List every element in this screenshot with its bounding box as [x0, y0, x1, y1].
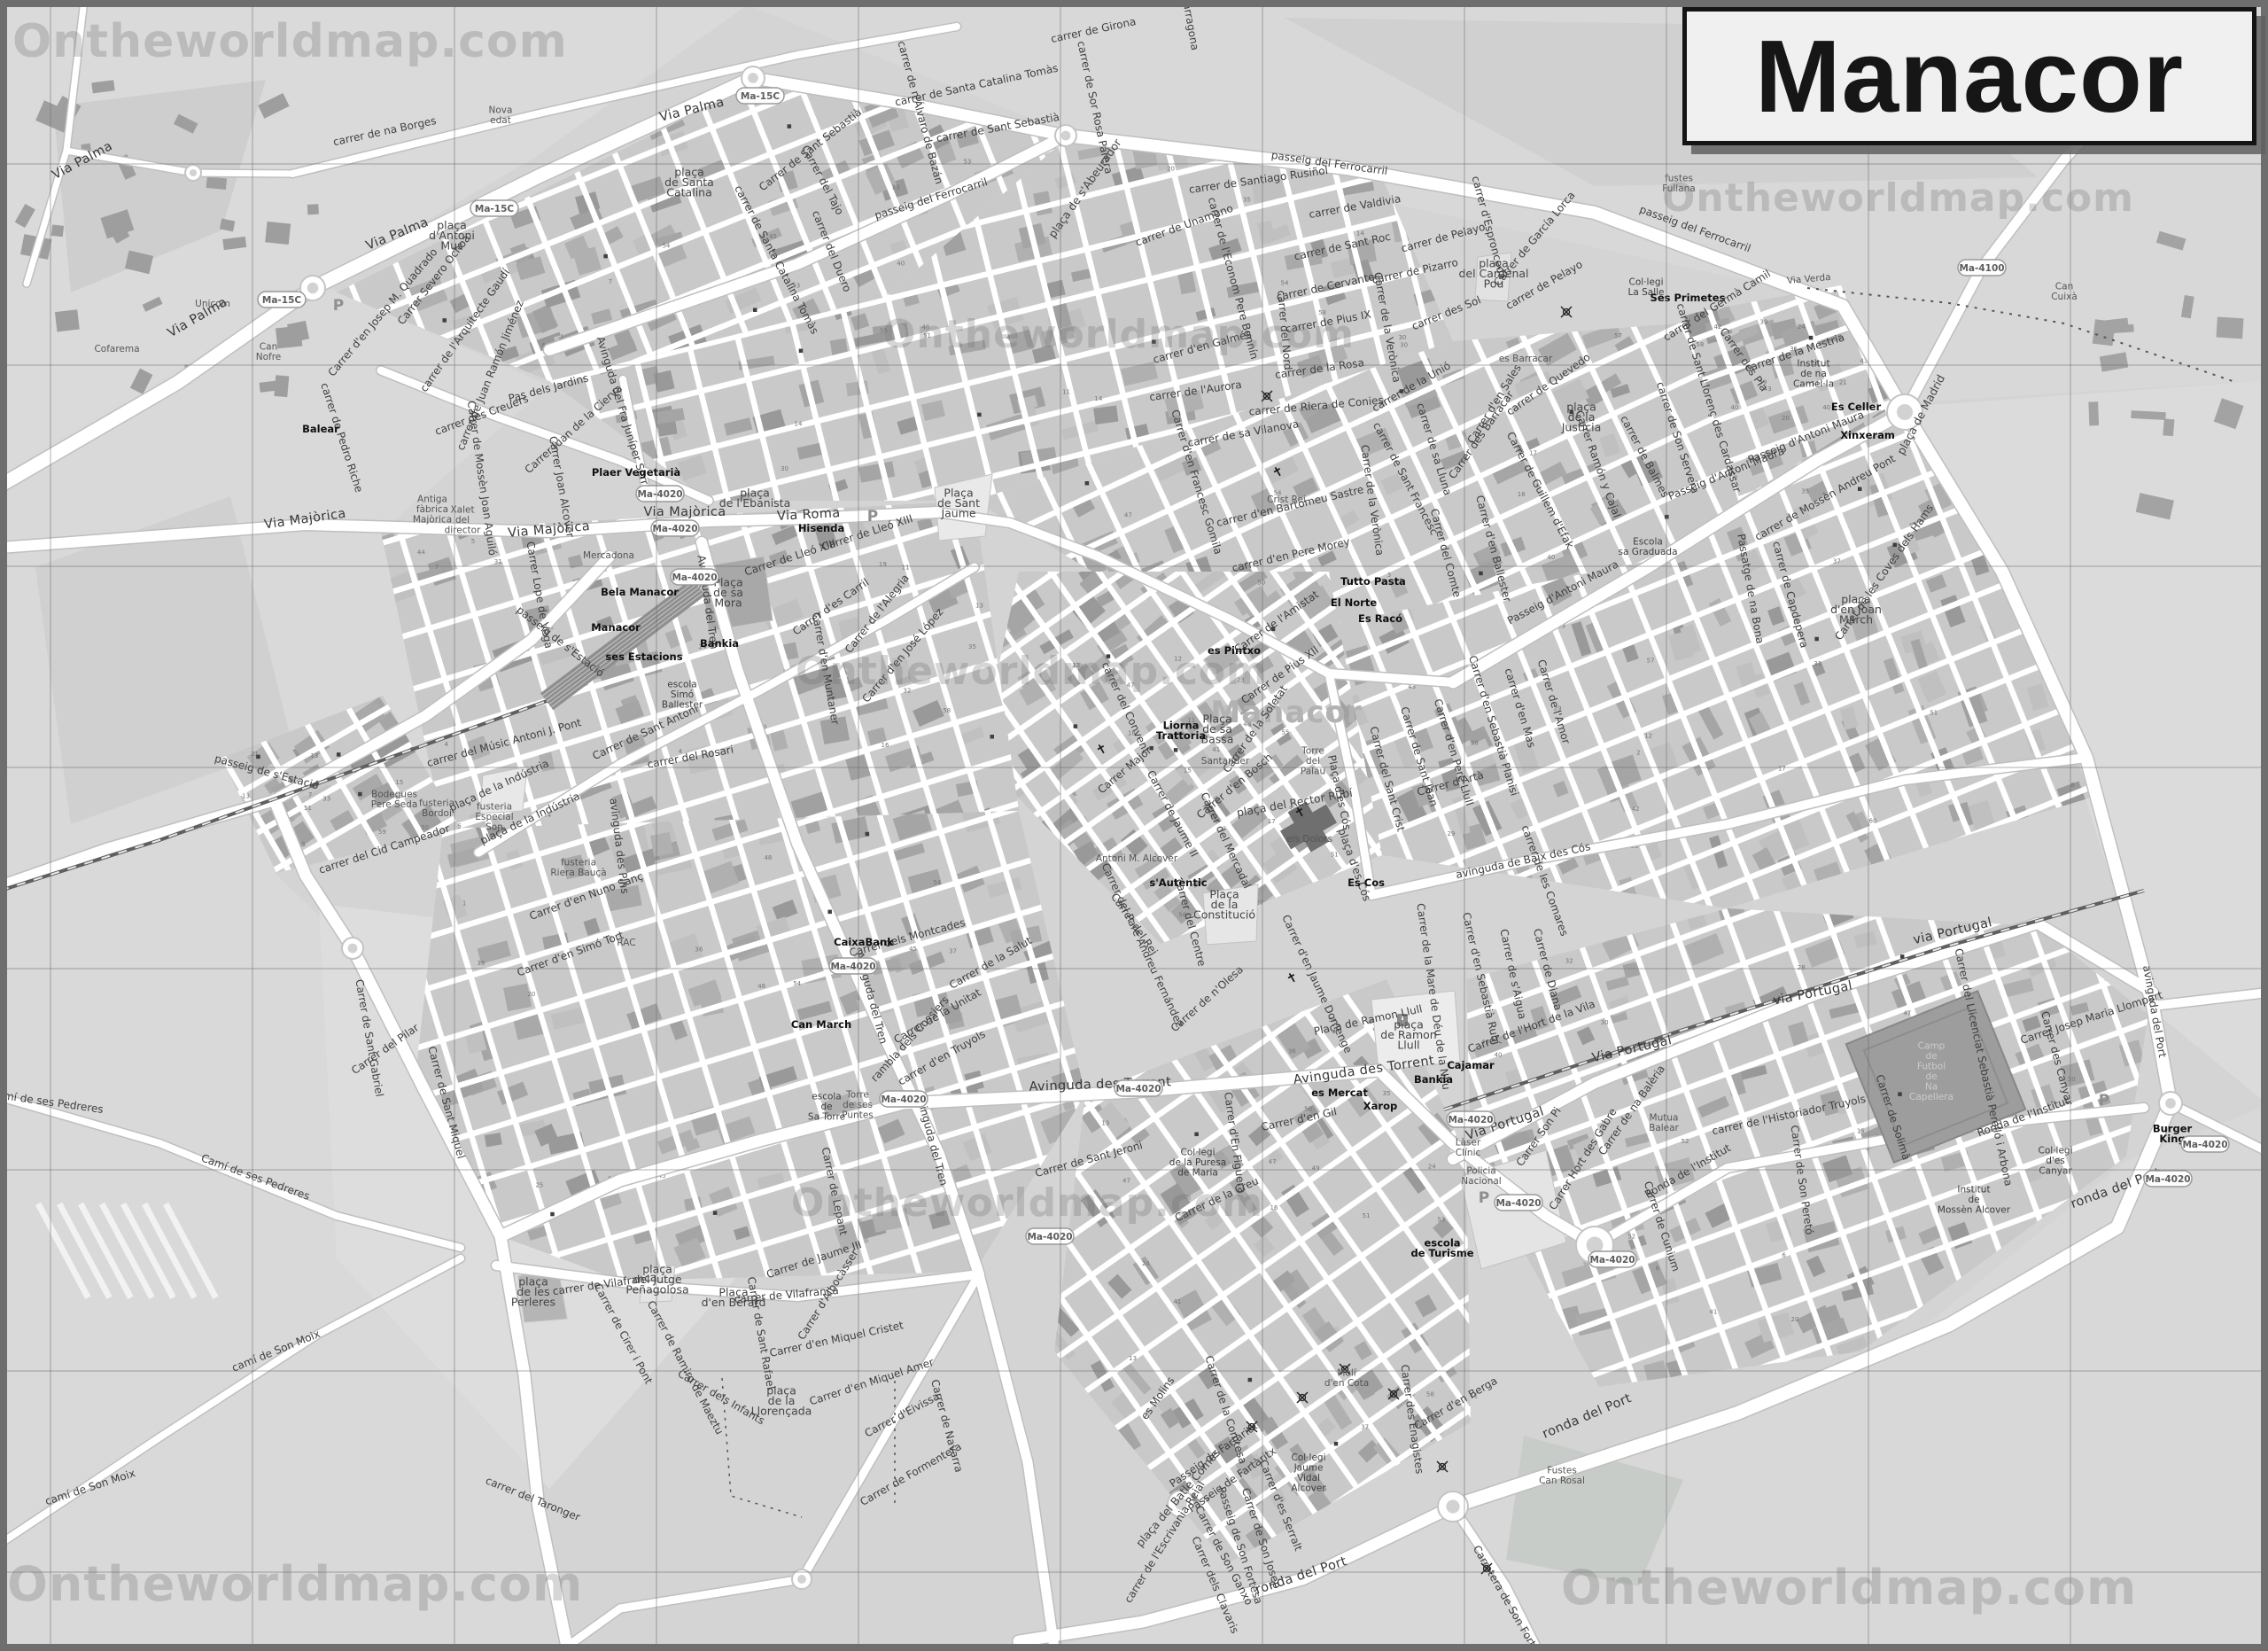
house-number: 32 [1565, 958, 1573, 965]
farm-building [2163, 418, 2174, 436]
watermark: Ontheworldmap.com [796, 649, 1268, 694]
poi-label: Plaer Vegetarià [592, 466, 680, 479]
road-shield: Ma-4020 [1026, 1228, 1074, 1244]
house-number: 11 [902, 564, 910, 571]
farm-building [2088, 401, 2099, 425]
house-number: 35 [1801, 487, 1809, 495]
house-number: 13 [1101, 1119, 1109, 1126]
poi-label: Xarop [1363, 1100, 1397, 1112]
svg-text:Mercadona: Mercadona [583, 550, 634, 561]
road-shield: Ma-15C [470, 200, 518, 216]
house-number: 30 [1398, 334, 1406, 341]
map-title: Manacor [1755, 17, 2184, 136]
poi-dot [799, 349, 804, 354]
svg-text:Col·legiJaumeVidalAlcover: Col·legiJaumeVidalAlcover [1291, 1452, 1326, 1494]
farm-building [51, 225, 64, 238]
svg-text:Ma-4020: Ma-4020 [1589, 1255, 1635, 1266]
road-shield: Ma-4100 [1958, 260, 2006, 276]
poi-dot [866, 832, 870, 837]
city-name-label: Manacor [1210, 695, 1362, 730]
house-number: 47 [1903, 1009, 1911, 1016]
house-number: 48 [764, 854, 772, 861]
poi-label: El Norte [1331, 596, 1377, 609]
house-number: 16 [1270, 1204, 1278, 1211]
road-shield: Ma-4020 [671, 569, 718, 585]
road-shield: Ma-4020 [1588, 1251, 1636, 1267]
poi-label: Col·legiJaumeVidalAlcover [1291, 1452, 1326, 1494]
svg-text:Hisenda: Hisenda [798, 522, 844, 534]
svg-text:Bankia: Bankia [1414, 1073, 1453, 1086]
house-number: 42 [1632, 806, 1640, 813]
poi-label: LàserClínic [1456, 1137, 1481, 1158]
poi-dot [1194, 1133, 1199, 1137]
svg-text:Ma-4020: Ma-4020 [1115, 1084, 1161, 1094]
house-number: 17 [1778, 766, 1786, 773]
poi-label: Crist Rei [1267, 495, 1306, 505]
svg-text:BodeguesPere Seda: BodeguesPere Seda [371, 789, 418, 810]
svg-text:Ma-15C: Ma-15C [262, 295, 302, 306]
svg-text:Crist Rei: Crist Rei [1267, 495, 1306, 505]
svg-text:Ma-4020: Ma-4020 [2182, 1140, 2227, 1150]
poi-label: Bankia [1414, 1073, 1453, 1086]
poi-dot [1898, 1092, 1902, 1096]
svg-text:Ma-4020: Ma-4020 [1027, 1232, 1072, 1242]
svg-text:Ma-4020: Ma-4020 [2145, 1174, 2190, 1185]
house-number: 40 [1730, 404, 1738, 411]
house-number: 41 [1709, 1308, 1717, 1315]
house-number: 24 [1142, 1260, 1150, 1267]
road-shield: Ma-4020 [1495, 1195, 1542, 1211]
house-number: 2 [1636, 749, 1640, 756]
house-number: 25 [535, 1181, 543, 1188]
house-number: 20 [1167, 166, 1175, 173]
svg-text:RAC: RAC [617, 938, 635, 948]
house-number: 54 [793, 980, 801, 987]
house-number: 15 [1857, 1128, 1865, 1135]
svg-text:fusteriaBordoi: fusteriaBordoi [419, 798, 454, 819]
house-number: 52 [1627, 1234, 1635, 1241]
poi-dot [1074, 724, 1078, 728]
road-shield: Ma-4020 [1447, 1111, 1495, 1127]
svg-text:es Barracar: es Barracar [1499, 354, 1553, 364]
svg-text:Manacor: Manacor [591, 621, 641, 634]
house-number: 6 [1656, 1266, 1660, 1273]
house-number: 39 [477, 960, 485, 967]
poi-label: Tutto Pasta [1340, 575, 1406, 588]
svg-text:Es Cos: Es Cos [1348, 876, 1385, 889]
svg-text:Cofarema: Cofarema [94, 344, 139, 354]
poi-dot [1334, 1442, 1339, 1446]
svg-text:Unicom: Unicom [195, 299, 230, 309]
svg-text:Ma-4020: Ma-4020 [672, 572, 717, 583]
poi-label: Bela Manacor [601, 586, 679, 598]
svg-text:els Dolors: els Dolors [1286, 834, 1332, 845]
house-number: 57 [1614, 332, 1622, 339]
poi-label: Cofarema [94, 344, 139, 354]
house-number: 13 [1129, 1355, 1137, 1362]
house-number: 54 [662, 243, 670, 250]
watermark: Ontheworldmap.com [12, 15, 568, 68]
house-number: 13 [975, 602, 983, 609]
poi-label: AntigafàbricaMajòrica [413, 495, 452, 526]
svg-text:PoliciaNacional: PoliciaNacional [1461, 1165, 1501, 1187]
svg-text:Ma-4100: Ma-4100 [1959, 263, 2004, 274]
poi-dot [550, 1212, 555, 1217]
poi-dot [753, 308, 757, 313]
poi-label: Balear [302, 423, 339, 435]
house-number: 49 [1312, 1165, 1320, 1172]
svg-text:Tutto Pasta: Tutto Pasta [1340, 575, 1406, 588]
house-number: 33 [322, 795, 330, 802]
svg-text:Bela Manacor: Bela Manacor [601, 586, 679, 598]
svg-text:Ma-4020: Ma-4020 [881, 1094, 926, 1105]
house-number: 1 [462, 900, 466, 907]
poi-label: Mercadona [583, 550, 634, 561]
road-shield: Ma-4020 [2181, 1136, 2229, 1152]
road-shield: Ma-4020 [880, 1091, 928, 1107]
house-number: 41 [1212, 746, 1220, 753]
svg-text:Ma-4020: Ma-4020 [1448, 1115, 1493, 1125]
svg-text:Ma-15C: Ma-15C [741, 91, 781, 102]
poi-dot [256, 755, 260, 759]
poi-label: ses Estacions [605, 650, 682, 663]
svg-text:Can March: Can March [791, 1018, 851, 1031]
poi-label: Torrede sesPuntes [842, 1090, 874, 1121]
watermark: Ontheworldmap.com [882, 312, 1355, 357]
svg-text:Balear: Balear [302, 423, 339, 435]
house-number: 4 [444, 741, 448, 748]
svg-text:ses Estacions: ses Estacions [605, 650, 682, 663]
house-number: 54 [933, 879, 941, 886]
farm-building [276, 326, 302, 349]
house-number: 36 [695, 946, 703, 954]
house-number: 41 [1173, 1298, 1181, 1305]
map-viewport: 4345315030545162858145115444521461372912… [0, 0, 2268, 1651]
svg-text:Xarop: Xarop [1363, 1100, 1397, 1112]
house-number: 24 [1798, 323, 1806, 331]
house-number: 15 [395, 779, 403, 786]
poi-dot [337, 752, 341, 757]
poi-label: CanNofre [256, 341, 282, 362]
road-shield: Ma-4020 [829, 958, 877, 974]
house-number: 7 [609, 278, 612, 285]
farm-building [2216, 317, 2243, 339]
poi-label: PoliciaNacional [1461, 1165, 1501, 1187]
poi-label: es Barracar [1499, 354, 1553, 364]
road-shield: Ma-4020 [636, 486, 684, 502]
poi-dot [1814, 637, 1819, 642]
house-number: 50 [1257, 580, 1265, 587]
house-number: 24 [1428, 1163, 1436, 1170]
house-number: 30 [781, 465, 788, 472]
house-number: 35 [1243, 196, 1251, 203]
map-title-box: Manacor [1682, 7, 2256, 145]
watermark: Ontheworldmap.com [791, 1180, 1263, 1226]
house-number: 21 [1839, 378, 1847, 385]
house-number: 35 [1383, 1090, 1391, 1097]
house-number: 57 [1647, 658, 1655, 665]
poi-label: es Mercat [1311, 1086, 1368, 1099]
house-number: 30 [1400, 342, 1408, 349]
house-number: 7 [308, 791, 312, 798]
house-number: 6 [1782, 1252, 1786, 1259]
parking-icon: P [1479, 1189, 1489, 1207]
poi-dot [713, 1211, 718, 1215]
road-shield: Ma-4020 [1115, 1080, 1162, 1096]
poi-dot [827, 910, 832, 915]
svg-text:Plaer Vegetarià: Plaer Vegetarià [592, 466, 680, 479]
svg-text:Cajamar: Cajamar [1447, 1059, 1495, 1071]
house-number: 30 [1601, 1019, 1609, 1026]
poi-dot [1900, 954, 1905, 959]
house-number: 54 [1281, 280, 1289, 287]
house-number: 39 [1759, 318, 1767, 325]
house-number: 44 [417, 549, 425, 556]
house-number: 13 [892, 183, 900, 191]
poi-label: Unicom [195, 299, 230, 309]
house-number: 20 [1782, 415, 1790, 422]
svg-text:Ma-4020: Ma-4020 [1495, 1198, 1541, 1209]
svg-text:Xinxeram: Xinxeram [1840, 429, 1895, 441]
poi-label: Can March [791, 1018, 851, 1031]
house-number: 37 [949, 947, 957, 954]
house-number: 17 [1529, 450, 1537, 457]
house-number: 28 [1798, 964, 1806, 971]
svg-text:Ma-4020: Ma-4020 [637, 489, 682, 500]
house-number: 59 [378, 829, 386, 836]
poi-dot [358, 792, 362, 797]
svg-text:CaixaBank: CaixaBank [834, 936, 894, 948]
house-number: 51 [1930, 709, 1938, 716]
house-number: 16 [882, 742, 889, 749]
house-number: 38 [1471, 739, 1479, 746]
house-number: 60 [1869, 817, 1877, 824]
house-number: 13 [242, 793, 250, 800]
house-number: 31 [1814, 660, 1821, 667]
house-number: 15 [1184, 767, 1192, 775]
poi-dot [977, 413, 982, 417]
poi-label: Manacor [591, 621, 641, 634]
svg-text:AntigafàbricaMajòrica: AntigafàbricaMajòrica [413, 495, 452, 526]
house-number: 58 [1426, 1390, 1434, 1398]
svg-text:Novaedat: Novaedat [489, 105, 513, 126]
svg-text:Ma-15C: Ma-15C [475, 204, 515, 214]
farm-building [206, 176, 227, 190]
road-shield: Ma-4020 [2144, 1171, 2192, 1187]
house-number: 36 [1288, 1048, 1296, 1055]
house-number: 14 [795, 420, 803, 427]
poi-label: LiornaTrattoria [1156, 719, 1206, 742]
house-number: 51 [1363, 1212, 1371, 1219]
road-shield: Ma-15C [258, 292, 306, 308]
house-number: 52 [1682, 1138, 1689, 1145]
house-number: 13 [310, 752, 318, 759]
city-map: 4345315030545162858145115444521461372912… [0, 0, 2268, 1651]
house-number: 40 [1495, 1052, 1503, 1059]
poi-dot [1085, 481, 1090, 486]
svg-text:es Mercat: es Mercat [1311, 1086, 1368, 1099]
poi-label: RAC [617, 938, 635, 948]
svg-text:Via Majòrica: Via Majòrica [643, 505, 726, 519]
road-shield: Ma-4020 [651, 520, 699, 536]
house-number: 40 [1547, 554, 1555, 561]
svg-text:El Norte: El Norte [1331, 596, 1377, 609]
poi-dot [1479, 572, 1483, 576]
poi-dot [1248, 1378, 1253, 1382]
house-number: 40 [1822, 404, 1830, 411]
svg-text:CanNofre: CanNofre [256, 341, 282, 362]
house-number: 5 [471, 538, 475, 545]
svg-text:LiornaTrattoria: LiornaTrattoria [1156, 719, 1206, 742]
poi-label: Hisenda [798, 522, 844, 534]
poi-label: Xinxeram [1840, 429, 1895, 441]
house-number: 58 [943, 707, 951, 714]
farm-building [307, 204, 319, 214]
svg-text:Torrede sesPuntes: Torrede sesPuntes [842, 1090, 874, 1121]
poi-label: MutuaBalear [1649, 1112, 1679, 1133]
house-number: 37 [1361, 1423, 1369, 1430]
house-number: 51 [1331, 851, 1339, 858]
parking-icon: P [333, 297, 344, 315]
poi-dot [442, 318, 447, 323]
poi-label: Es Cos [1348, 876, 1385, 889]
poi-dot [1809, 336, 1814, 340]
svg-text:Ma-4020: Ma-4020 [830, 962, 875, 972]
house-number: 31 [494, 558, 502, 565]
house-number: 47 [1124, 512, 1132, 519]
house-number: 29 [1447, 830, 1455, 837]
farm-building [2093, 319, 2116, 346]
poi-label: Cajamar [1447, 1059, 1495, 1071]
street-label: Via Majòrica [643, 505, 726, 519]
house-number: 45 [909, 946, 917, 953]
house-number: 17 [1268, 818, 1276, 825]
house-number: 18 [1518, 491, 1526, 498]
house-number: 47 [1269, 1158, 1277, 1165]
house-number: 7 [435, 564, 439, 571]
house-number: 8 [2070, 782, 2074, 789]
poi-dot [603, 254, 608, 259]
poi-label: BodeguesPere Seda [371, 789, 418, 810]
poi-label: Es Racó [1358, 612, 1402, 625]
house-number: 40 [897, 260, 905, 267]
svg-text:Ma-4020: Ma-4020 [652, 524, 697, 534]
poi-label: fusteriaBordoi [419, 798, 454, 819]
road-shield: Ma-15C [736, 88, 784, 104]
parking-icon: P [2099, 1092, 2109, 1110]
house-number: 11 [1062, 388, 1070, 395]
poi-label: Novaedat [489, 105, 513, 126]
svg-text:MutuaBalear: MutuaBalear [1649, 1112, 1679, 1133]
house-number: 46 [757, 983, 765, 990]
poi-dot [1858, 487, 1862, 491]
house-number: 5 [457, 822, 461, 829]
farm-building [55, 309, 80, 331]
poi-dot [788, 124, 792, 128]
house-number: 37 [1833, 557, 1841, 565]
house-number: 53 [1437, 1216, 1445, 1223]
farm-building [265, 222, 291, 245]
svg-text:Es Racó: Es Racó [1358, 612, 1402, 625]
poi-label: CaixaBank [834, 936, 894, 948]
poi-label: Bankia [700, 637, 739, 650]
house-number: 5 [301, 841, 305, 848]
poi-label: els Dolors [1286, 834, 1332, 845]
svg-text:Bankia: Bankia [700, 637, 739, 650]
house-number: 19 [879, 561, 887, 568]
poi-dot [1174, 748, 1178, 752]
watermark: Ontheworldmap.com [1561, 1560, 2137, 1616]
house-number: 20 [527, 991, 535, 998]
house-number: 12 [1644, 732, 1652, 739]
poi-dot [990, 735, 994, 739]
house-number: 20 [1791, 1316, 1799, 1323]
house-number: 51 [304, 805, 312, 812]
watermark: Ontheworldmap.com [1662, 175, 2134, 221]
house-number: 14 [1094, 395, 1102, 402]
svg-text:LàserClínic: LàserClínic [1456, 1137, 1481, 1158]
watermark: Ontheworldmap.com [7, 1556, 583, 1612]
